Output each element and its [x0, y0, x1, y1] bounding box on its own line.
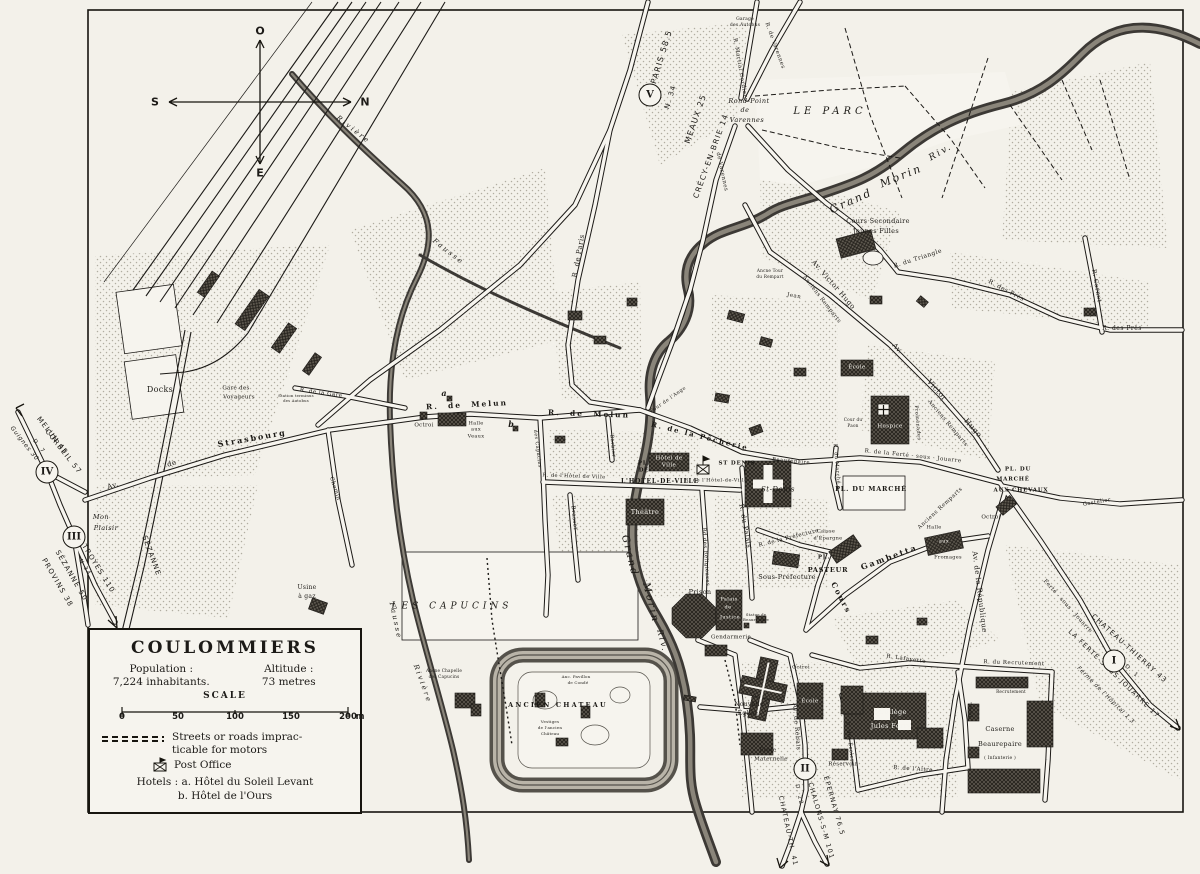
scale-tick-200: 200: [339, 712, 357, 722]
compass-west-label: O: [255, 25, 264, 38]
impracticable-text: Streets or roads imprac- ticable for mot…: [172, 731, 302, 756]
scale-tick-50: 50: [172, 712, 184, 722]
scale-label: SCALE: [100, 691, 350, 701]
hotels-label: Hotels :: [137, 776, 179, 788]
impracticable-line1: Streets or roads imprac-: [172, 731, 302, 743]
scale-tick-100: 100: [226, 712, 244, 722]
map-page: Garagedes AutobusPARIS 58.5N. 34MEAUX 25…: [0, 0, 1200, 874]
scale-numbers: 0 50 100 150 200 m: [108, 712, 342, 724]
market-square: [843, 476, 905, 510]
impracticable-line2: ticable for motors: [172, 744, 267, 756]
post-office-label: Post Office: [174, 759, 231, 771]
altitude-label: Altitude :: [264, 663, 313, 675]
legend-title: COULOMMIERS: [100, 638, 350, 658]
altitude-value: 73 metres: [262, 676, 316, 688]
scale-tick-150: 150: [282, 712, 300, 722]
compass-east-label: E: [256, 167, 264, 180]
population-block: Population : 7,224 inhabitants.: [100, 663, 223, 689]
legend-box: COULOMMIERS Population : 7,224 inhabitan…: [88, 628, 362, 814]
compass-arms: [145, 26, 375, 178]
impracticable-legend-row: Streets or roads imprac- ticable for mot…: [100, 731, 350, 756]
population-value: 7,224 inhabitants.: [113, 676, 210, 688]
scale-tick-0: 0: [119, 712, 125, 722]
compass-rose: O E S N: [145, 26, 375, 178]
scale-bar: 0 50 100 150 200 m: [108, 702, 342, 728]
population-label: Population :: [129, 663, 193, 675]
capucins-area: [402, 552, 638, 640]
compass-south-label: S: [151, 96, 159, 109]
post-office-icon: [152, 757, 168, 772]
scale-unit: m: [356, 712, 365, 722]
impracticable-road-symbol: [102, 736, 164, 744]
hotel-a: a. Hôtel du Soleil Levant: [182, 776, 314, 788]
compass-north-label: N: [360, 96, 369, 109]
post-office-legend-row: Post Office: [152, 757, 350, 772]
hotel-b: b. Hôtel de l'Ours: [178, 790, 272, 802]
altitude-block: Altitude : 73 metres: [228, 663, 351, 689]
hotels-legend: Hotels : a. Hôtel du Soleil Levant b. Hô…: [100, 776, 350, 803]
